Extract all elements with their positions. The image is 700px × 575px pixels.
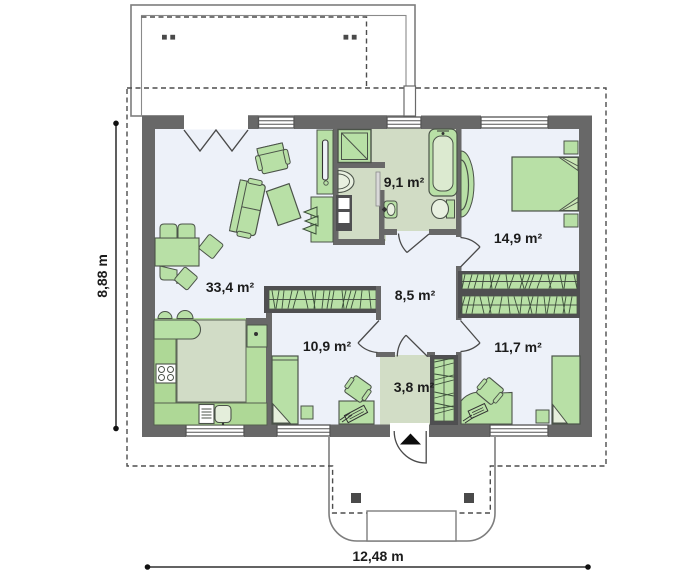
svg-text:33,4 m²: 33,4 m²	[206, 279, 255, 295]
svg-text:8,5 m²: 8,5 m²	[395, 287, 436, 303]
svg-text:8,88 m: 8,88 m	[94, 254, 110, 298]
svg-text:9,1 m²: 9,1 m²	[384, 174, 425, 190]
svg-text:11,7 m²: 11,7 m²	[494, 339, 542, 355]
svg-text:12,48 m: 12,48 m	[352, 548, 403, 564]
svg-text:3,8 m²: 3,8 m²	[394, 379, 435, 395]
svg-text:14,9 m²: 14,9 m²	[494, 230, 543, 246]
svg-text:10,9 m²: 10,9 m²	[303, 338, 352, 354]
